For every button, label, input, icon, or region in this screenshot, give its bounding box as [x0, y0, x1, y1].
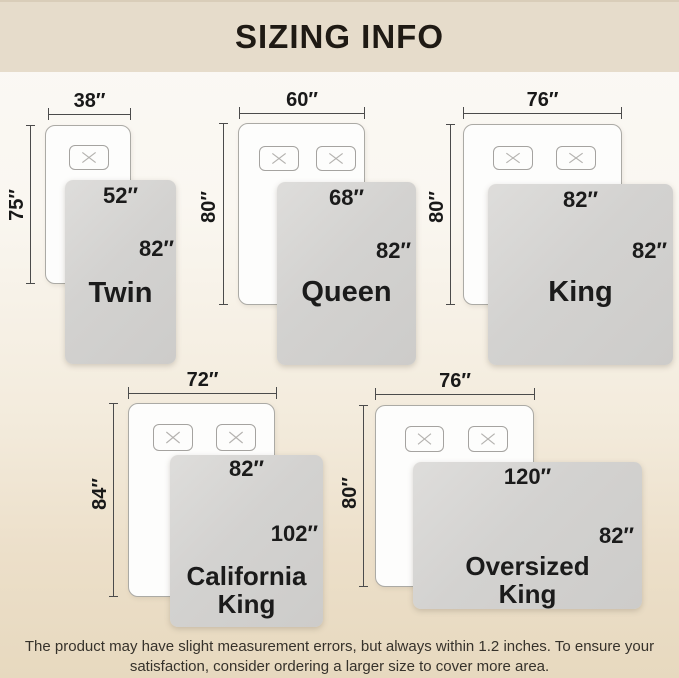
blanket-oversized-king: 120″ 82″ Oversized King	[413, 462, 642, 609]
blanket-king: 82″ 82″ King	[488, 184, 673, 365]
blanket-width-value: 68″	[277, 184, 416, 212]
width-dimension-line	[128, 393, 277, 394]
mattress-length-value: 80″	[198, 167, 220, 247]
pillow-icon	[69, 145, 109, 170]
pillow-icon	[216, 424, 256, 451]
blanket-length-value: 82″	[632, 237, 667, 265]
pillow-icon	[405, 426, 444, 452]
length-dimension-line	[223, 123, 224, 305]
width-dimension-line	[48, 114, 131, 115]
mattress-width-value: 72″	[128, 369, 277, 391]
disclaimer-line-1: The product may have slight measurement …	[0, 637, 679, 657]
size-name: Oversized King	[413, 552, 642, 608]
pillow-icon	[316, 146, 356, 171]
disclaimer-line-2: satisfaction, consider ordering a larger…	[0, 657, 679, 677]
pillow-icon	[259, 146, 299, 171]
blanket-twin: 52″ 82″ Twin	[65, 180, 176, 364]
mattress-length-value: 75″	[6, 165, 28, 245]
mattress-length-value: 84″	[89, 454, 111, 534]
blanket-length-value: 82″	[376, 237, 411, 265]
pillow-icon	[468, 426, 508, 452]
blanket-length-value: 102″	[271, 520, 318, 548]
blanket-width-value: 82″	[170, 455, 323, 483]
blanket-length-value: 82″	[599, 522, 634, 550]
length-dimension-line	[363, 405, 364, 587]
header-banner: SIZING INFO	[0, 0, 679, 72]
size-name: California King	[170, 562, 323, 618]
size-name: King	[488, 273, 673, 311]
length-dimension-line	[450, 124, 451, 305]
mattress-width-value: 76″	[463, 89, 622, 111]
length-dimension-line	[30, 125, 31, 284]
mattress-width-value: 38″	[28, 90, 151, 112]
blanket-queen: 68″ 82″ Queen	[277, 182, 416, 365]
page-title: SIZING INFO	[235, 18, 444, 56]
blanket-width-value: 82″	[488, 186, 673, 214]
blanket-width-value: 52″	[65, 182, 176, 210]
size-name: Queen	[277, 273, 416, 311]
mattress-length-value: 80″	[426, 167, 448, 247]
mattress-width-value: 76″	[375, 370, 535, 392]
mattress-width-value: 60″	[239, 89, 365, 111]
blanket-width-value: 120″	[413, 463, 642, 491]
width-dimension-line	[239, 113, 365, 114]
blanket-length-value: 82″	[139, 235, 174, 263]
width-dimension-line	[375, 394, 535, 395]
blanket-california-king: 82″ 102″ California King	[170, 455, 323, 627]
pillow-icon	[556, 146, 596, 170]
pillow-icon	[493, 146, 533, 170]
width-dimension-line	[463, 113, 622, 114]
sizing-info-graphic: SIZING INFO 38″ 75″ 52″ 82″ Twin 60″ 80″	[0, 0, 679, 678]
pillow-icon	[153, 424, 193, 451]
size-name: Twin	[65, 274, 176, 312]
length-dimension-line	[113, 403, 114, 597]
mattress-length-value: 80″	[339, 453, 361, 533]
